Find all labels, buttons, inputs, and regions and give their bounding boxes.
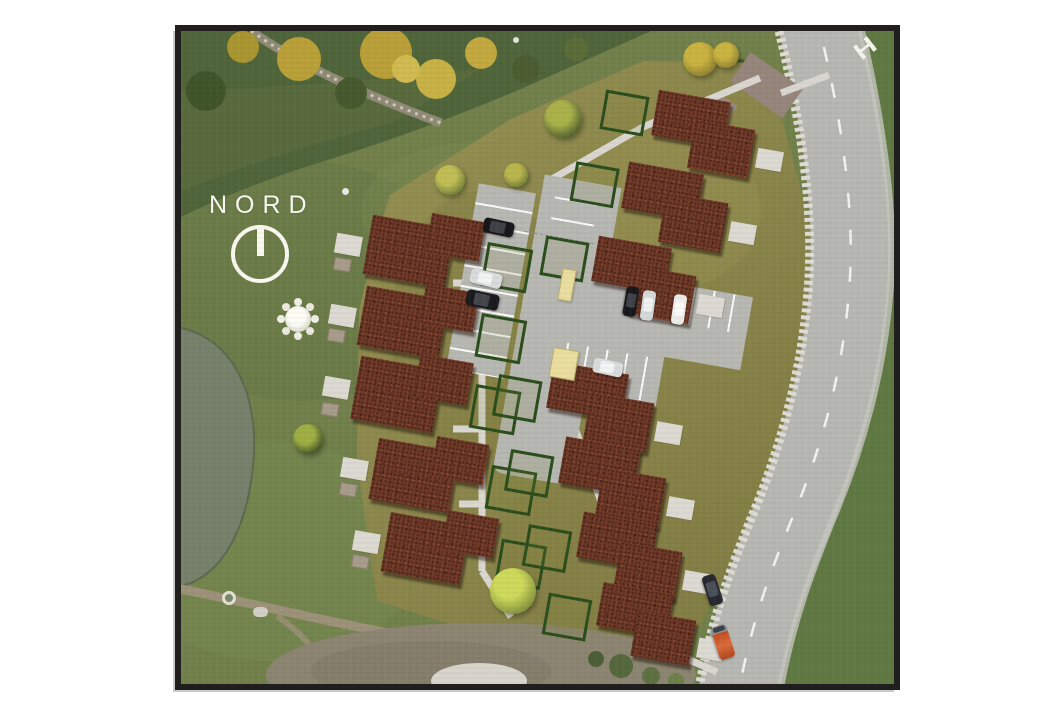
tree — [504, 163, 528, 187]
car-glass — [674, 301, 685, 316]
terrace — [755, 148, 784, 172]
tree — [683, 42, 717, 76]
building-roofs — [616, 161, 732, 252]
tree — [293, 424, 323, 454]
roof — [687, 119, 756, 178]
car — [701, 573, 724, 607]
well-fountain — [285, 306, 311, 332]
garden-hedge — [522, 524, 573, 573]
building-roofs — [553, 436, 670, 527]
building — [381, 500, 500, 590]
garden-hedge — [492, 374, 543, 423]
tree — [544, 100, 582, 138]
car-glass — [489, 221, 505, 235]
roof — [441, 510, 499, 559]
car-glass — [473, 293, 490, 307]
building — [553, 436, 670, 527]
car-glass — [477, 271, 494, 285]
building-roofs — [368, 426, 489, 518]
north-label: NORD — [209, 191, 315, 220]
roof — [630, 610, 696, 666]
terrace — [654, 422, 683, 446]
terrace — [696, 294, 725, 318]
building — [647, 90, 760, 179]
page: { "map": { "north_label": "NORD", "road_… — [0, 0, 1040, 720]
storage-container — [549, 347, 580, 381]
terrace — [334, 233, 363, 257]
car-glass — [643, 297, 654, 312]
car-glass — [599, 361, 615, 374]
roof — [413, 354, 473, 405]
terrace — [340, 457, 369, 481]
roof — [430, 436, 489, 486]
building-roofs — [647, 90, 760, 179]
garden-hedge — [570, 161, 620, 208]
garden-shed — [327, 328, 346, 344]
garden-hedge — [504, 449, 555, 498]
tree — [435, 165, 465, 195]
terrace — [328, 304, 357, 328]
building-roofs — [592, 582, 700, 666]
building — [368, 426, 489, 518]
garden-shed — [321, 402, 340, 418]
building-roofs — [381, 500, 500, 590]
utility-ring — [222, 591, 236, 605]
north-indicator: NORD — [209, 191, 315, 220]
building — [592, 582, 700, 666]
garden-hedge — [474, 313, 527, 364]
tree — [713, 42, 739, 68]
garden-hedge — [599, 89, 649, 136]
utility-blob — [253, 607, 268, 617]
garden-shed — [339, 482, 358, 498]
terrace — [352, 530, 381, 554]
terrace — [322, 376, 351, 400]
marker-dot — [342, 188, 349, 195]
car-glass — [705, 581, 719, 598]
truck-cab — [713, 625, 725, 633]
car-glass — [625, 293, 637, 308]
aerial-site-plan: NORD H — [175, 25, 900, 690]
garden-shed — [333, 257, 352, 273]
roof — [658, 192, 729, 252]
garden-shed — [351, 554, 370, 570]
terrace — [666, 497, 695, 521]
garden-hedge — [542, 593, 593, 642]
tree — [490, 568, 536, 614]
building — [616, 161, 732, 252]
compass-icon — [231, 225, 289, 283]
photo-area: NORD H — [181, 31, 894, 684]
terrace — [728, 222, 757, 246]
site-objects-layer — [181, 31, 894, 684]
marker-dot — [513, 37, 519, 43]
compass-needle-icon — [257, 227, 264, 256]
